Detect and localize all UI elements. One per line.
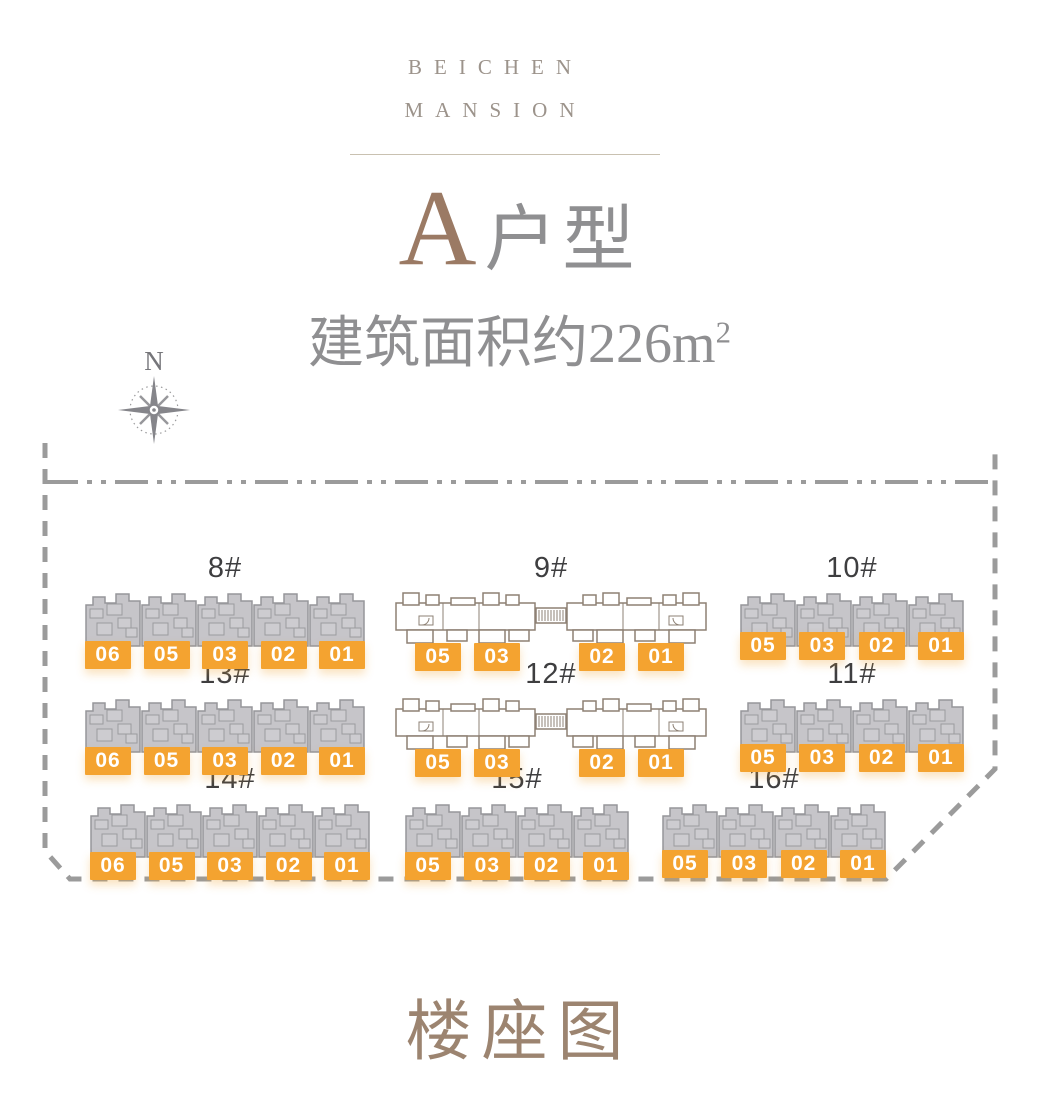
building-15: 15# 05 03 02 01: [405, 763, 629, 880]
unit-badge: 02: [261, 747, 307, 775]
unit-badge: 03: [202, 747, 248, 775]
building-14: 14# 06 05 03 02 01: [90, 763, 370, 880]
building-14-units: 06 05 03 02 01: [90, 852, 370, 880]
building-13-units: 06 05 03 02 01: [85, 747, 365, 775]
building-11: 11# 05 03 02 01: [740, 658, 964, 772]
unit-badge: 05: [149, 852, 195, 880]
unit-badge: 03: [474, 749, 520, 777]
unit-badge: 02: [859, 744, 905, 772]
building-12: 12# 05 03 02 01: [395, 658, 707, 777]
unit-badge: 02: [579, 749, 625, 777]
unit-badge: 05: [740, 744, 786, 772]
building-12-units: 05 03 02 01: [395, 749, 707, 777]
unit-badge: 03: [799, 632, 845, 660]
building-8: 8# 06 05 03 02 01: [85, 552, 365, 669]
unit-badge: 01: [319, 641, 365, 669]
building-9-footprint: [395, 588, 707, 650]
building-16: 16# 05 03 02 01: [662, 763, 886, 878]
unit-badge: 06: [85, 641, 131, 669]
building-11-label: 11#: [740, 658, 964, 692]
unit-badge: 01: [638, 643, 684, 671]
building-9-label: 9#: [395, 552, 707, 586]
unit-badge: 01: [918, 632, 964, 660]
unit-badge: 06: [90, 852, 136, 880]
unit-group-left: 05 03: [415, 643, 520, 671]
unit-badge: 02: [524, 852, 570, 880]
building-10-label: 10#: [740, 552, 964, 586]
unit-badge: 01: [918, 744, 964, 772]
building-8-footprint: [85, 588, 365, 648]
unit-badge: 05: [144, 641, 190, 669]
unit-badge: 02: [579, 643, 625, 671]
unit-badge: 05: [405, 852, 451, 880]
building-13-footprint: [85, 694, 365, 754]
unit-badge: 03: [721, 850, 767, 878]
unit-badge: 05: [740, 632, 786, 660]
building-8-label: 8#: [85, 552, 365, 586]
building-14-footprint: [90, 799, 370, 859]
unit-badge: 03: [799, 744, 845, 772]
unit-badge: 01: [324, 852, 370, 880]
page-title: 楼座图: [0, 978, 1039, 1074]
building-13: 13# 06 05 03 02 01: [85, 658, 365, 775]
building-16-units: 05 03 02 01: [662, 850, 886, 878]
building-15-units: 05 03 02 01: [405, 852, 629, 880]
unit-badge: 01: [840, 850, 886, 878]
site-plan-page: BEICHEN MANSION A户型 建筑面积约226m2 N 8#: [0, 0, 1039, 1116]
building-12-footprint: [395, 694, 707, 756]
unit-badge: 05: [415, 749, 461, 777]
unit-badge: 01: [583, 852, 629, 880]
unit-badge: 03: [207, 852, 253, 880]
building-15-footprint: [405, 799, 629, 859]
unit-badge: 01: [638, 749, 684, 777]
building-11-units: 05 03 02 01: [740, 744, 964, 772]
building-9-units: 05 03 02 01: [395, 643, 707, 671]
unit-badge: 02: [261, 641, 307, 669]
unit-badge: 02: [266, 852, 312, 880]
unit-badge: 03: [464, 852, 510, 880]
unit-badge: 03: [202, 641, 248, 669]
building-10-units: 05 03 02 01: [740, 632, 964, 660]
unit-badge: 05: [144, 747, 190, 775]
unit-group-right: 02 01: [579, 643, 684, 671]
unit-group-right: 02 01: [579, 749, 684, 777]
unit-badge: 02: [781, 850, 827, 878]
unit-badge: 03: [474, 643, 520, 671]
unit-group-left: 05 03: [415, 749, 520, 777]
building-9: 9# 05 03 02 01: [395, 552, 707, 671]
building-8-units: 06 05 03 02 01: [85, 641, 365, 669]
unit-badge: 01: [319, 747, 365, 775]
unit-badge: 06: [85, 747, 131, 775]
unit-badge: 02: [859, 632, 905, 660]
unit-badge: 05: [415, 643, 461, 671]
building-10: 10# 05 03 02 01: [740, 552, 964, 660]
unit-badge: 05: [662, 850, 708, 878]
